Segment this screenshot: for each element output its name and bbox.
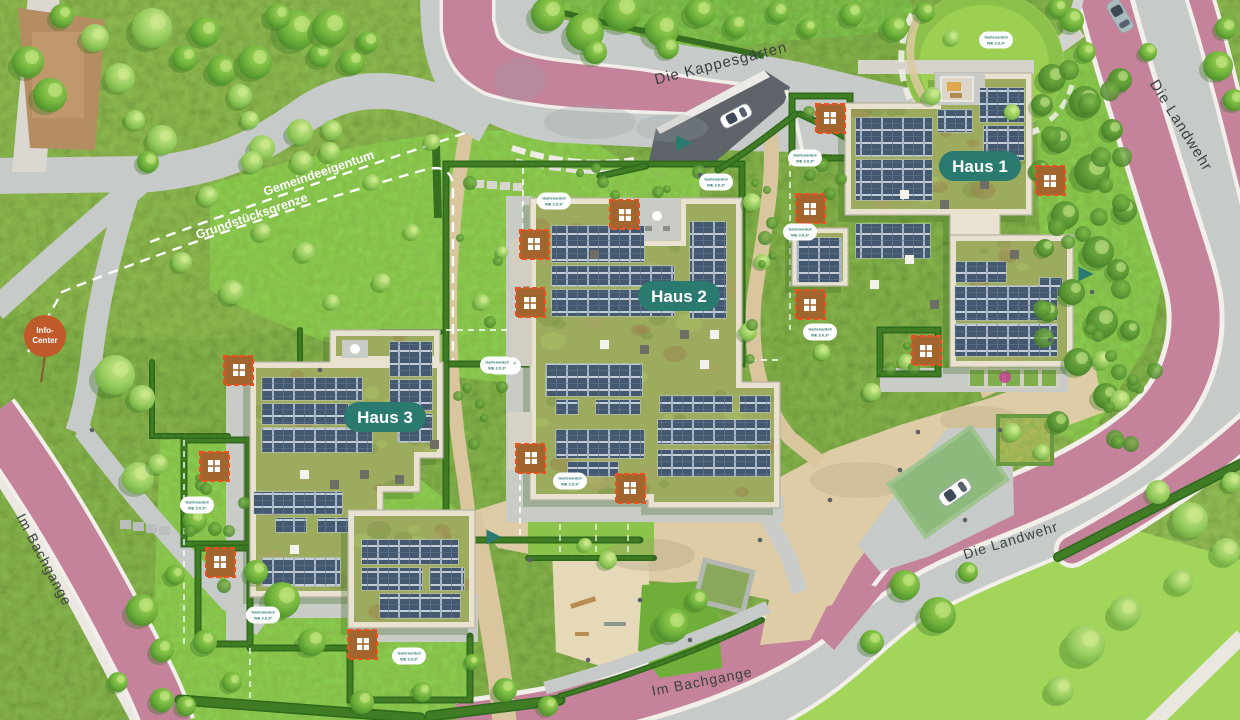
svg-text:WE 3.0.3*: WE 3.0.3* [791,233,809,238]
svg-text:Haus 2: Haus 2 [651,287,707,306]
svg-text:WE 3.0.3*: WE 3.0.3* [254,616,272,621]
svg-text:Gartenanteil: Gartenanteil [788,227,811,232]
svg-text:Gartenanteil: Gartenanteil [704,177,727,182]
svg-text:Haus 1: Haus 1 [952,157,1008,176]
svg-text:WE 3.0.3*: WE 3.0.3* [188,506,206,511]
svg-text:WE 3.0.3*: WE 3.0.3* [707,183,725,188]
svg-text:Info-: Info- [36,326,54,335]
svg-text:Center: Center [32,336,57,345]
svg-text:Gartenanteil: Gartenanteil [485,360,508,365]
svg-text:Gartenanteil: Gartenanteil [397,651,420,656]
svg-text:Gartenanteil: Gartenanteil [984,35,1007,40]
svg-text:Gartenanteil: Gartenanteil [808,327,831,332]
svg-text:Gartenanteil: Gartenanteil [793,153,816,158]
svg-text:WE 3.0.3*: WE 3.0.3* [400,657,418,662]
svg-text:WE 3.0.3*: WE 3.0.3* [545,202,563,207]
svg-text:WE 3.0.3*: WE 3.0.3* [811,333,829,338]
svg-text:Gartenanteil: Gartenanteil [185,500,208,505]
svg-text:WE 3.0.3*: WE 3.0.3* [561,482,579,487]
svg-text:Gartenanteil: Gartenanteil [542,196,565,201]
svg-text:Gartenanteil: Gartenanteil [558,476,581,481]
svg-text:WE 3.0.3*: WE 3.0.3* [488,366,506,371]
svg-text:Gartenanteil: Gartenanteil [251,610,274,615]
svg-text:WE 3.0.3*: WE 3.0.3* [796,159,814,164]
svg-text:Haus 3: Haus 3 [357,408,413,427]
svg-text:WE 3.0.3*: WE 3.0.3* [987,41,1005,46]
